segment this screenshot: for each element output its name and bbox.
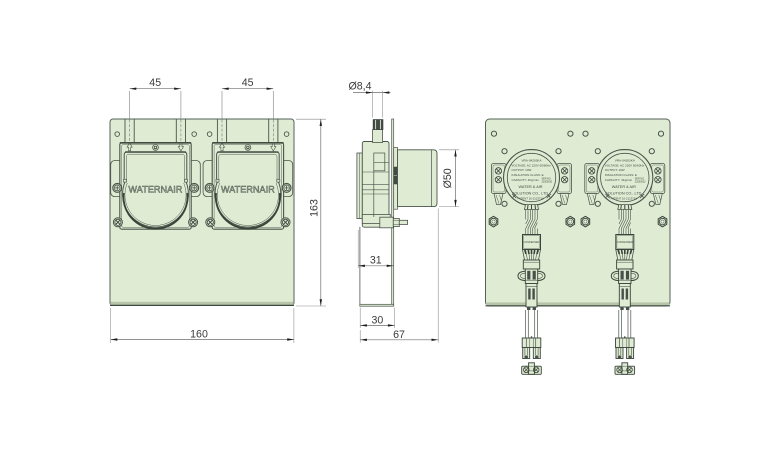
svg-text:CONDENSER: CONDENSER bbox=[524, 241, 540, 244]
svg-text:CAPACITY: 4Kg/min: CAPACITY: 4Kg/min bbox=[512, 178, 540, 182]
svg-text:67: 67 bbox=[393, 329, 405, 341]
svg-text:22050032: 22050032 bbox=[542, 180, 553, 183]
svg-text:SOLUTION CO., LTD.: SOLUTION CO., LTD. bbox=[512, 191, 549, 195]
svg-text:Ø8,4: Ø8,4 bbox=[349, 80, 372, 92]
svg-text:INSULATION CLASS: E: INSULATION CLASS: E bbox=[512, 173, 544, 177]
svg-text:163: 163 bbox=[309, 199, 321, 217]
svg-text:VRA-04203KA: VRA-04203KA bbox=[521, 158, 542, 162]
svg-text:PATENT 10-2123716: PATENT 10-2123716 bbox=[517, 197, 544, 201]
svg-text:OUTPUT: 10W: OUTPUT: 10W bbox=[512, 168, 532, 172]
svg-text:31: 31 bbox=[370, 255, 382, 267]
svg-text:45: 45 bbox=[242, 77, 254, 89]
svg-text:Ø50: Ø50 bbox=[442, 168, 454, 188]
svg-text:WATERNAIR: WATERNAIR bbox=[129, 184, 183, 194]
svg-text:30: 30 bbox=[372, 314, 384, 326]
svg-text:160: 160 bbox=[190, 329, 208, 341]
svg-text:45: 45 bbox=[149, 77, 161, 89]
svg-text:VOLTAGE: AC 220V 50/60Hz: VOLTAGE: AC 220V 50/60Hz bbox=[512, 163, 552, 167]
svg-text:WATER & AIR: WATER & AIR bbox=[518, 185, 542, 189]
